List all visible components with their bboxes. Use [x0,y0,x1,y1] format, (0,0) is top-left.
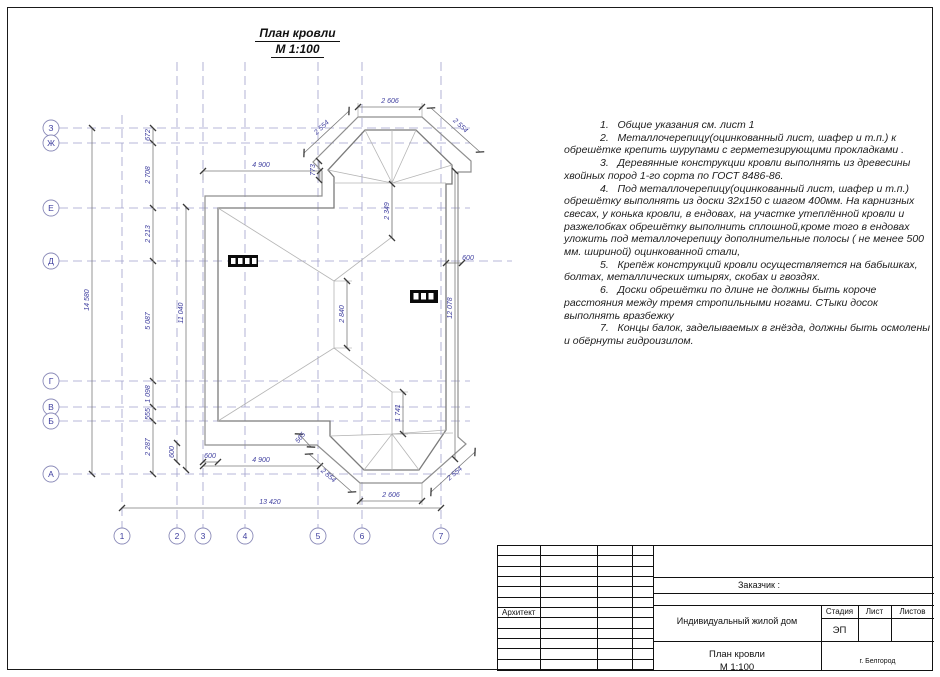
chimney-symbol-left [228,255,258,267]
titleblock-cell [633,546,654,556]
dim-label-overall-h: 13 420 [259,499,281,506]
bottom-bay-roof-lines [330,430,453,470]
tb-divider [653,593,934,594]
axis-marker-6: 6 [354,528,370,544]
dim-label: 565 [294,431,307,445]
dim-label: 1 098 [145,385,152,403]
titleblock-cell [498,618,541,628]
dim-label: 2 606 [380,98,399,105]
titleblock-cell [598,618,633,628]
dim-label: 2 708 [145,166,152,185]
dim-label: 672 [145,129,152,141]
titleblock-cell [598,639,633,649]
titleblock-cell [633,567,654,577]
dim-label: 2 349 [384,202,391,221]
dim-label: 2 554 [318,467,337,485]
dim-label: 600 [169,446,176,458]
svg-text:2: 2 [175,531,180,541]
titleblock-cell [541,577,598,587]
titleblock-cell [541,556,598,566]
titleblock-cell [498,649,541,659]
titleblock-cell [498,567,541,577]
note-1: 1. Общие указания см. лист 1 [564,119,936,132]
dim-label: 11 040 [178,302,185,323]
svg-text:1: 1 [120,531,125,541]
axis-marker-d: Д [43,253,59,269]
dim-label: 1 741 [395,404,402,422]
tb-divider [653,577,934,578]
sheet-label: Лист [858,607,891,616]
general-notes: 1. Общие указания см. лист 1 2. Металлоч… [564,119,936,348]
svg-text:Д: Д [48,256,54,266]
titleblock-cell [633,587,654,597]
svg-text:Е: Е [48,203,54,213]
tb-divider [653,641,934,642]
dim-line [431,108,480,152]
dim-label: 600 [462,255,474,262]
titleblock-cell [633,577,654,587]
drawing-name-line2: М 1:100 [653,662,821,673]
titleblock-cell [498,629,541,639]
svg-text:Ж: Ж [47,138,55,148]
drawing-name-line1: План кровли [653,649,821,660]
titleblock-cell [633,556,654,566]
titleblock-cell [633,618,654,628]
dim-label: 600 [204,453,216,460]
axis-marker-5: 5 [310,528,326,544]
svg-text:7: 7 [439,531,444,541]
titleblock-cell [598,649,633,659]
titleblock-cell [541,567,598,577]
dim-label: 2 554 [445,465,464,483]
titleblock-cell [633,608,654,618]
titleblock-cell [598,577,633,587]
titleblock-cell [498,546,541,556]
note-2: 2. Металлочерепицу(оцинкованный лист, ша… [564,132,936,157]
note-7: 7. Концы балок, заделываемых в гнёзда, д… [564,322,936,347]
titleblock-cell [541,546,598,556]
svg-text:6: 6 [360,531,365,541]
svg-text:Г: Г [49,376,54,386]
titleblock-cell [633,649,654,659]
axis-grid-horizontal [59,128,512,474]
titleblock-cell [633,660,654,670]
axis-markers-bottom: 1 2 3 4 5 6 7 [114,528,449,544]
titleblock-cell [598,587,633,597]
chimney-symbol-right [410,290,438,303]
sheets-label: Листов [891,607,934,616]
svg-text:Б: Б [48,416,54,426]
top-bay-roof-lines [328,130,452,183]
titleblock-cell [633,639,654,649]
axis-marker-7: 7 [433,528,449,544]
hip-valley-lines [218,184,392,434]
axis-marker-b: Б [43,413,59,429]
titleblock-cell [598,629,633,639]
axis-marker-e: Е [43,200,59,216]
tb-divider [821,618,934,619]
note-5: 5. Крепёж конструкций кровли осуществляе… [564,259,936,284]
axis-marker-2: 2 [169,528,185,544]
titleblock-cell [498,587,541,597]
axis-markers-left: З Ж Е Д Г В Б А [43,120,59,482]
dim-label: 2 840 [339,305,346,324]
svg-text:А: А [48,469,54,479]
titleblock-cell [498,660,541,670]
axis-marker-3: 3 [195,528,211,544]
titleblock-cell [598,608,633,618]
titleblock-cell [541,608,598,618]
axis-marker-z: З [43,120,59,136]
titleblock-cell [541,629,598,639]
axis-marker-4: 4 [237,528,253,544]
titleblock-cell [498,598,541,608]
customer-label: Заказчик : [738,580,780,590]
dim-label: 2 554 [450,117,468,135]
titleblock-cell [541,660,598,670]
titleblock-cell [598,567,633,577]
titleblock-cell [541,618,598,628]
axis-grid-lines [59,62,512,528]
svg-text:3: 3 [201,531,206,541]
dim-label: 4 900 [252,162,270,169]
titleblock-cell [633,629,654,639]
note-4: 4. Под металлочерепицу(оцинкованный лист… [564,183,936,259]
architect-label: Архитект [502,608,535,617]
svg-text:4: 4 [243,531,248,541]
dim-label: 555 [145,408,152,420]
svg-text:5: 5 [316,531,321,541]
titleblock-cell [541,598,598,608]
titleblock-cell [598,546,633,556]
dim-label: 2 213 [145,225,152,244]
dim-label: 2 606 [381,492,400,499]
dim-label: 773 [310,164,317,176]
drawing-sheet: План кровли М 1:100 [0,0,940,677]
axis-marker-a: А [43,466,59,482]
titleblock-cell [598,598,633,608]
titleblock-cell [541,587,598,597]
dim-label: 5 087 [145,311,152,330]
project-name: Индивидуальный жилой дом [653,616,821,626]
dim-label-overall-v: 14 580 [84,289,91,311]
titleblock-cell [498,556,541,566]
titleblock-cell [498,639,541,649]
titleblock-cell [598,556,633,566]
titleblock-cell [541,649,598,659]
title-block: Заказчик : Архитект Индивидуальный жилой… [497,545,933,671]
dim-label: 4 900 [252,457,270,464]
note-3: 3. Деревянные конструкции кровли выполня… [564,157,936,182]
dim-label: 12 078 [447,297,454,319]
axis-marker-1: 1 [114,528,130,544]
stage-value: ЭП [821,625,858,636]
titleblock-cell [598,660,633,670]
titleblock-cell [541,639,598,649]
note-6: 6. Доски обрешётки по длине не должны бы… [564,284,936,322]
stage-label: Стадия [821,607,858,616]
city-label: г. Белгород [821,658,934,665]
dim-label: 2 287 [145,437,152,457]
svg-text:З: З [48,123,53,133]
axis-marker-zh: Ж [43,135,59,151]
svg-text:В: В [48,402,54,412]
titleblock-cell [633,598,654,608]
axis-marker-g: Г [43,373,59,389]
titleblock-cell [498,577,541,587]
